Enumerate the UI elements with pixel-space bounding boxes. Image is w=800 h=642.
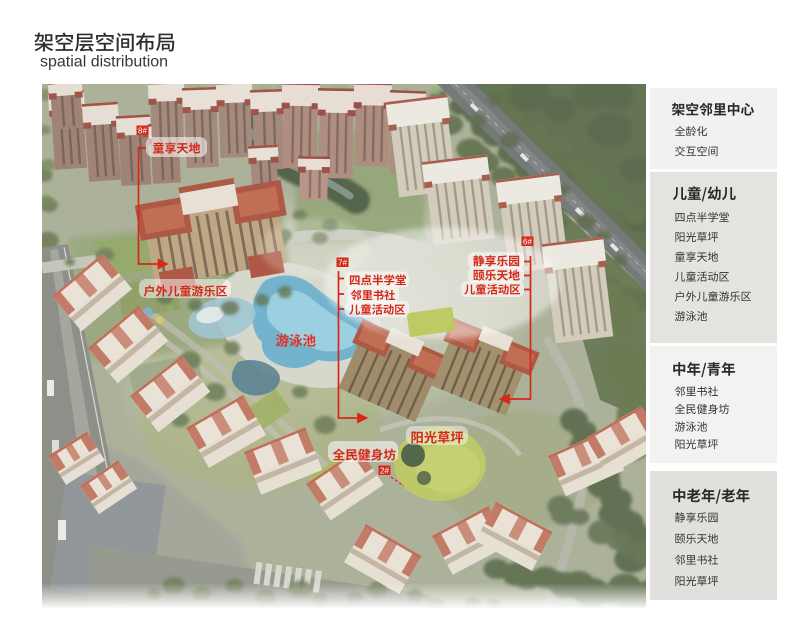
svg-text:8#: 8# bbox=[138, 126, 147, 135]
svg-text:7#: 7# bbox=[338, 258, 347, 267]
svg-text:spatial distribution: spatial distribution bbox=[40, 54, 168, 71]
svg-text:6#: 6# bbox=[523, 237, 532, 246]
svg-text:2#: 2# bbox=[380, 466, 389, 475]
